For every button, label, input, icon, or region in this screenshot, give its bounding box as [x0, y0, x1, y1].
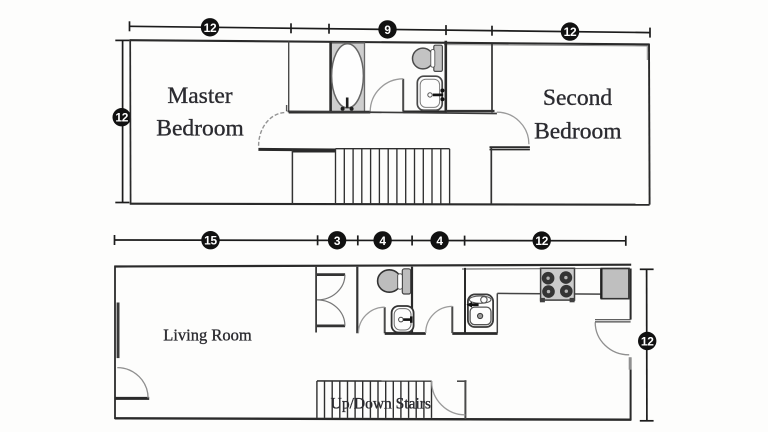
- svg-text:4: 4: [379, 234, 386, 248]
- svg-text:12: 12: [564, 25, 577, 39]
- svg-text:Living Room: Living Room: [163, 326, 252, 345]
- svg-text:4: 4: [436, 234, 443, 248]
- svg-text:Second: Second: [543, 85, 612, 111]
- svg-text:Up/Down Stairs: Up/Down Stairs: [331, 396, 431, 413]
- svg-text:12: 12: [641, 335, 654, 349]
- svg-text:12: 12: [115, 111, 128, 125]
- svg-text:12: 12: [535, 234, 548, 248]
- svg-text:3: 3: [334, 234, 341, 248]
- svg-text:9: 9: [384, 23, 391, 37]
- svg-text:Master: Master: [167, 83, 232, 109]
- svg-text:15: 15: [204, 234, 217, 248]
- svg-text:Bedroom: Bedroom: [156, 115, 243, 141]
- svg-text:Bedroom: Bedroom: [534, 118, 621, 144]
- svg-text:12: 12: [204, 21, 217, 35]
